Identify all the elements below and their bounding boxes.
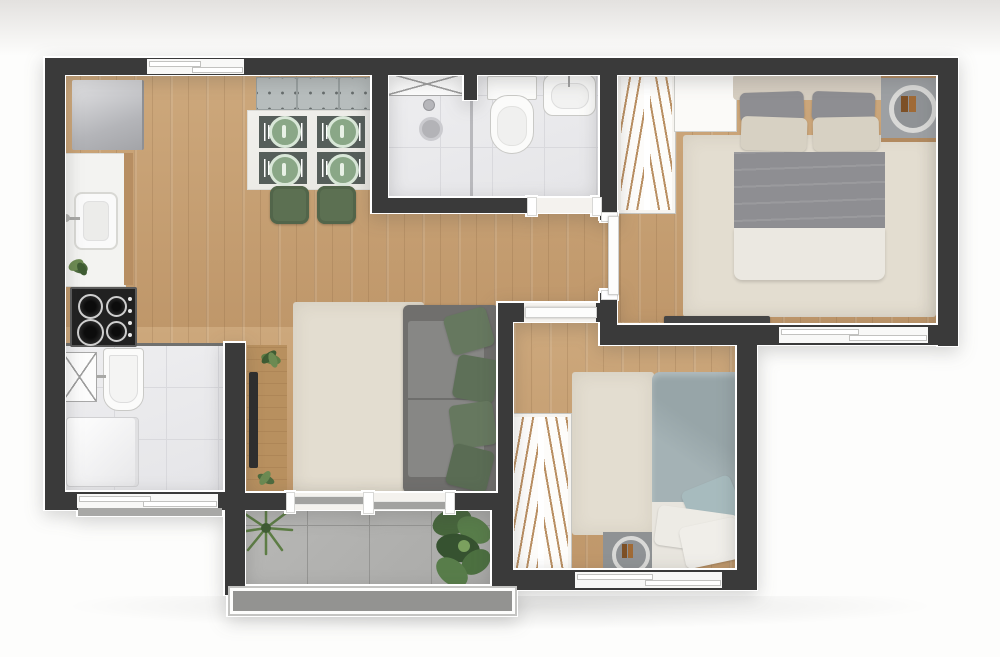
laundry-window-sill [78,508,222,516]
wall-bedroom2-right [737,330,757,590]
wall-right [938,58,958,346]
window-kitchen [147,59,244,74]
wall-balcony-right [492,500,512,595]
wall-bathroom-bottom [372,198,534,213]
window-bedroom1 [779,327,928,343]
wall-bathroom-left [372,72,388,205]
window-rail [79,496,151,502]
window-rail [849,335,927,341]
window-rail [192,67,243,73]
walls-layer [0,0,1000,657]
window-rail [645,580,721,586]
wall-balcony-left [225,505,245,595]
wall-bedroom2-top-l [498,303,524,322]
wall-left [45,58,65,510]
door-jamb [286,492,295,513]
balcony-slider-rail [372,501,446,510]
window-rail [577,574,653,580]
floor-plan [0,0,1000,657]
door-jamb [445,492,455,514]
wall-bedroom2-top-r [596,303,617,322]
balcony-slider-rail [294,496,366,505]
door-leaf-bedroom1 [608,216,619,295]
door-jamb [363,492,374,514]
wall-shower-stub [464,58,477,100]
wall-hall-right-top [600,58,617,220]
window-bedroom2 [575,572,722,588]
wall-laundry-right [225,343,245,510]
window-laundry [77,494,218,508]
door-leaf-bedroom2 [525,307,597,318]
window-rail [781,329,859,335]
window-rail [143,501,217,507]
bathroom-door-gap [534,198,594,213]
balcony-parapet [228,586,517,616]
door-jamb [527,197,537,216]
